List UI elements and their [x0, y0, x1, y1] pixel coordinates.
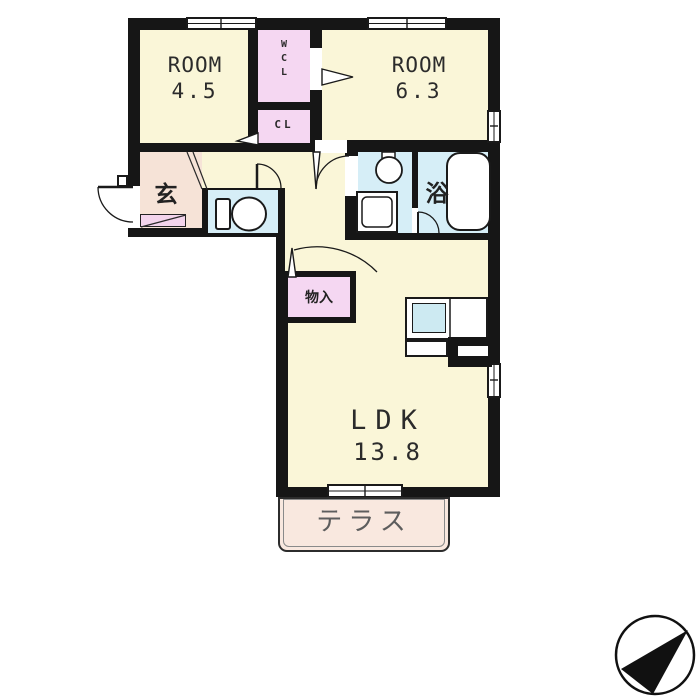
wcl-label: W C L: [258, 38, 310, 80]
toilet-icon: [216, 198, 266, 231]
wcl-door-leaf: [322, 69, 353, 85]
terrace-label: テラス: [286, 508, 442, 534]
wcl-letter-w: W: [258, 38, 310, 52]
room-4_5-label: ROOM: [140, 55, 250, 76]
genkan-label: 玄: [146, 183, 186, 206]
wcl-letter-l: L: [258, 66, 310, 80]
room-4_5-area: 4.5: [140, 81, 250, 102]
sink-icon: [376, 152, 402, 183]
toilet-door-swing: [257, 164, 281, 188]
ldk-area: 13.8: [300, 440, 476, 464]
ldk-door-swing: [288, 247, 377, 277]
cl-label: CL: [258, 119, 310, 130]
compass-icon: [616, 616, 694, 694]
ldk-label: LDK: [300, 407, 476, 434]
room-6_3-area: 6.3: [350, 81, 488, 102]
entrance-door-swing: [98, 187, 133, 222]
bath-door-swing: [418, 212, 439, 233]
wcl-letter-c: C: [258, 52, 310, 66]
room-4_5-door-leaf: [237, 133, 258, 145]
room-6_3-label: ROOM: [350, 55, 488, 76]
washing-machine-icon: [357, 192, 397, 232]
fixtures-overlay: [0, 0, 700, 700]
storage-label: 物入: [288, 290, 350, 304]
room-6_3-door-swing: [313, 152, 349, 189]
floor-plan: ROOM 4.5 ROOM 6.3 W C L CL 玄 浴 物入 LDK 13…: [0, 0, 700, 700]
bath-label: 浴: [418, 182, 456, 205]
